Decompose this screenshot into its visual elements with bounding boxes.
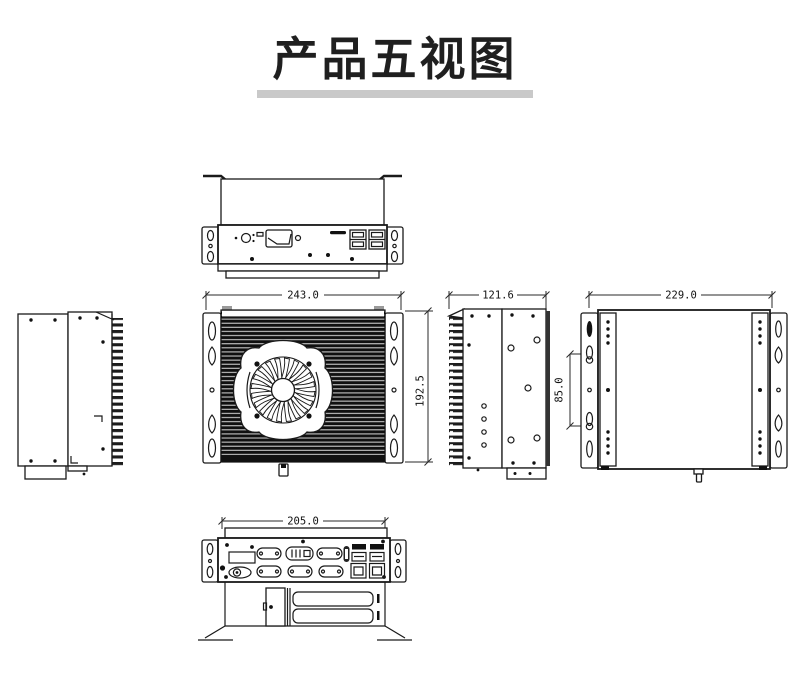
screw	[308, 253, 312, 257]
dim-label-back-width: 229.0	[665, 290, 697, 302]
screw	[326, 253, 330, 257]
side-panel	[502, 309, 546, 468]
screw	[531, 314, 534, 317]
screw	[477, 469, 480, 472]
top-strip	[225, 528, 387, 538]
edge-strip	[546, 311, 550, 466]
fan-screw	[254, 361, 259, 366]
cpu-fan-icon	[250, 357, 316, 423]
screw	[78, 316, 81, 319]
dim-label-front-width: 243.0	[287, 290, 319, 302]
fan-hub	[272, 379, 295, 402]
heatsink-top-strip	[222, 311, 384, 317]
screw	[511, 461, 514, 464]
fan-screw	[254, 413, 259, 418]
expansion-bracket	[266, 588, 285, 626]
chassis-body	[68, 312, 112, 466]
foot	[507, 468, 546, 479]
screw	[53, 318, 56, 321]
right-side-view: 121.6	[446, 289, 551, 479]
slot-screw	[377, 611, 380, 620]
screw	[95, 316, 98, 319]
base-strip	[226, 271, 379, 278]
foot	[601, 466, 609, 470]
five-view-drawing: 243.0	[0, 0, 790, 688]
bottom-plug-pin	[697, 474, 702, 482]
heatsink-fins	[112, 318, 123, 466]
rear-panel-view: 205.0	[198, 515, 412, 640]
front-view: 243.0	[203, 289, 434, 476]
led	[252, 240, 254, 242]
screw	[29, 318, 32, 321]
slot-cover	[293, 592, 373, 606]
lower-chassis	[225, 582, 385, 626]
screw	[53, 459, 56, 462]
screw	[487, 314, 490, 317]
screw	[532, 461, 535, 464]
screw	[510, 313, 513, 316]
screw	[467, 456, 470, 459]
screw	[269, 605, 273, 609]
back-view: 229.0	[581, 289, 787, 482]
foot	[68, 466, 87, 471]
led	[252, 234, 254, 236]
sim-slot	[330, 231, 346, 234]
screw	[29, 459, 32, 462]
slot-cover	[293, 609, 373, 623]
foot-left	[198, 626, 233, 640]
bracket-right	[386, 227, 403, 264]
dim-label-side-depth: 121.6	[482, 290, 514, 302]
back-cover	[598, 310, 770, 469]
heatsink-fins	[449, 316, 463, 466]
latch	[264, 603, 267, 610]
top-cover	[221, 179, 384, 225]
screw	[250, 257, 254, 261]
dim-label-mount-slot-spacing: 85.0	[554, 377, 566, 402]
grounding-stud	[220, 565, 225, 570]
top-view	[202, 176, 403, 278]
led	[235, 237, 238, 240]
left-side-view	[18, 312, 123, 479]
audio-jack-slot	[345, 549, 348, 559]
screw	[529, 472, 532, 475]
bracket-right	[390, 540, 406, 582]
foot-right	[377, 626, 412, 640]
screw	[514, 472, 517, 475]
base-strip	[218, 264, 387, 271]
screw	[350, 257, 354, 261]
screw	[467, 343, 470, 346]
slot-screw	[377, 594, 380, 603]
bottom-plug-pin	[281, 464, 286, 468]
dim-label-front-height: 192.5	[415, 375, 427, 407]
fan-screw	[306, 413, 311, 418]
bracket-left	[202, 540, 218, 582]
foot	[759, 466, 767, 470]
bracket-right	[770, 313, 787, 468]
chamfer	[449, 309, 464, 318]
screw	[101, 340, 104, 343]
screw	[101, 447, 104, 450]
dim-label-rear-panel-width: 205.0	[287, 516, 319, 528]
bottom-plug	[694, 469, 703, 474]
fan-screw	[306, 361, 311, 366]
bracket-left	[202, 227, 219, 264]
screw	[83, 473, 86, 476]
side-plate	[18, 314, 68, 466]
heatsink-base	[221, 455, 385, 462]
foot	[25, 466, 66, 479]
screw	[470, 314, 473, 317]
